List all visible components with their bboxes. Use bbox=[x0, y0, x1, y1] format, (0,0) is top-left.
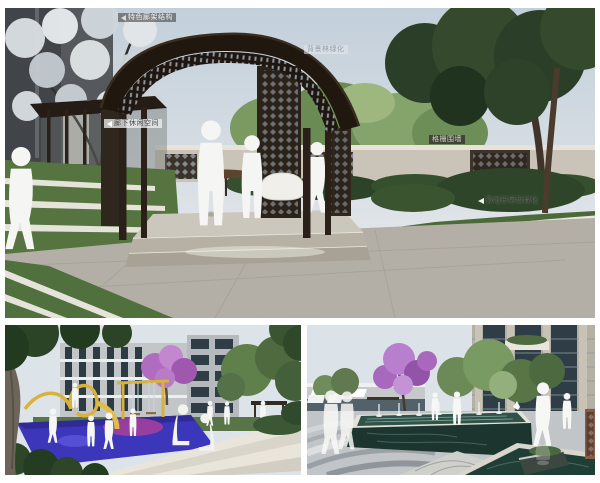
playground-scene bbox=[5, 325, 301, 475]
annotation-seating: 廊下休闲空间 bbox=[104, 119, 162, 128]
pool-courtyard-render bbox=[307, 325, 595, 475]
annotation-text: 格栅围墙 bbox=[432, 135, 462, 144]
render-collage: 特色廊架结构 廊下休闲空间 背景林绿化 格栅围墙 微地形层级绿化 bbox=[0, 0, 600, 483]
label-arrow-icon bbox=[121, 15, 126, 21]
label-arrow-icon bbox=[478, 198, 484, 204]
annotation-backdrop-trees: 背景林绿化 bbox=[304, 45, 348, 54]
annotation-wall: 格栅围墙 bbox=[429, 135, 465, 144]
pool-courtyard-scene bbox=[307, 325, 595, 475]
annotation-text: 微地形层级绿化 bbox=[486, 196, 539, 205]
pavilion-plaza-render: 特色廊架结构 廊下休闲空间 背景林绿化 格栅围墙 微地形层级绿化 bbox=[5, 8, 595, 318]
annotation-text: 廊下休闲空间 bbox=[114, 119, 159, 128]
curved-bench bbox=[261, 173, 305, 200]
playground-render bbox=[5, 325, 301, 475]
pavilion-platform bbox=[125, 210, 371, 267]
annotation-lawn-terraces: 微地形层级绿化 bbox=[475, 196, 542, 205]
pavilion-plaza-scene bbox=[5, 8, 595, 318]
annotation-text: 背景林绿化 bbox=[307, 45, 345, 54]
label-arrow-icon bbox=[107, 121, 112, 127]
annotation-pergola: 特色廊架结构 bbox=[118, 13, 176, 22]
annotation-text: 特色廊架结构 bbox=[128, 13, 173, 22]
